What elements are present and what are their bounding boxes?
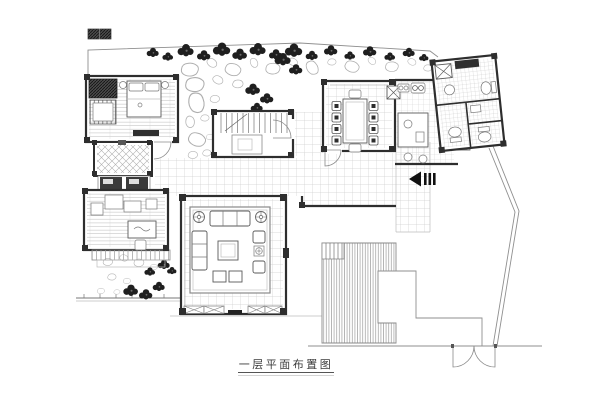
study-room bbox=[82, 188, 170, 267]
stair-landing bbox=[232, 135, 262, 154]
side-table bbox=[254, 246, 264, 256]
wall-column bbox=[283, 248, 289, 258]
outdoor-unit bbox=[100, 29, 111, 39]
floor-plan-page: 一层平面布置图 bbox=[0, 0, 600, 420]
deck-steps bbox=[322, 243, 344, 259]
dining-table bbox=[343, 99, 367, 143]
chaise-sofa bbox=[192, 231, 207, 270]
double-door bbox=[451, 344, 497, 367]
sink-icon bbox=[470, 105, 481, 113]
vanity-units bbox=[98, 176, 150, 190]
nightstand bbox=[120, 82, 127, 89]
stool bbox=[419, 155, 427, 163]
toilet-icon bbox=[480, 81, 496, 95]
bathroom-wing bbox=[429, 53, 506, 154]
desk bbox=[128, 221, 156, 238]
armchair bbox=[253, 261, 265, 273]
desk-chair bbox=[135, 240, 146, 250]
sofa-3seat bbox=[210, 211, 250, 226]
plan-title: 一层平面布置图 bbox=[239, 358, 334, 371]
wardrobe bbox=[89, 79, 117, 98]
floor-plan-canvas: 一层平面布置图 bbox=[0, 0, 600, 420]
round-side-table bbox=[194, 212, 205, 223]
ottoman bbox=[229, 271, 242, 282]
ottoman bbox=[213, 271, 226, 282]
title-underline bbox=[238, 373, 334, 376]
stool bbox=[404, 153, 412, 161]
toilet-icon bbox=[448, 126, 462, 142]
armchair bbox=[253, 231, 265, 243]
nightstand bbox=[162, 82, 169, 89]
terrace-deck bbox=[322, 243, 497, 367]
entry-step bbox=[228, 310, 242, 314]
toilet-icon bbox=[477, 126, 491, 142]
round-side-table bbox=[256, 212, 267, 223]
living-room bbox=[179, 194, 289, 315]
door-opening bbox=[151, 138, 172, 145]
outdoor-unit bbox=[88, 29, 99, 39]
coffee-table bbox=[218, 241, 238, 260]
bed bbox=[127, 81, 161, 117]
lattice-floor-room bbox=[92, 140, 152, 176]
dining-room bbox=[321, 79, 400, 166]
bed-bench bbox=[133, 130, 159, 136]
kitchen-island bbox=[398, 113, 428, 147]
staircase bbox=[211, 109, 295, 158]
x-shaft bbox=[435, 64, 452, 80]
sink-icon bbox=[398, 84, 409, 92]
stove-icon bbox=[411, 83, 425, 93]
